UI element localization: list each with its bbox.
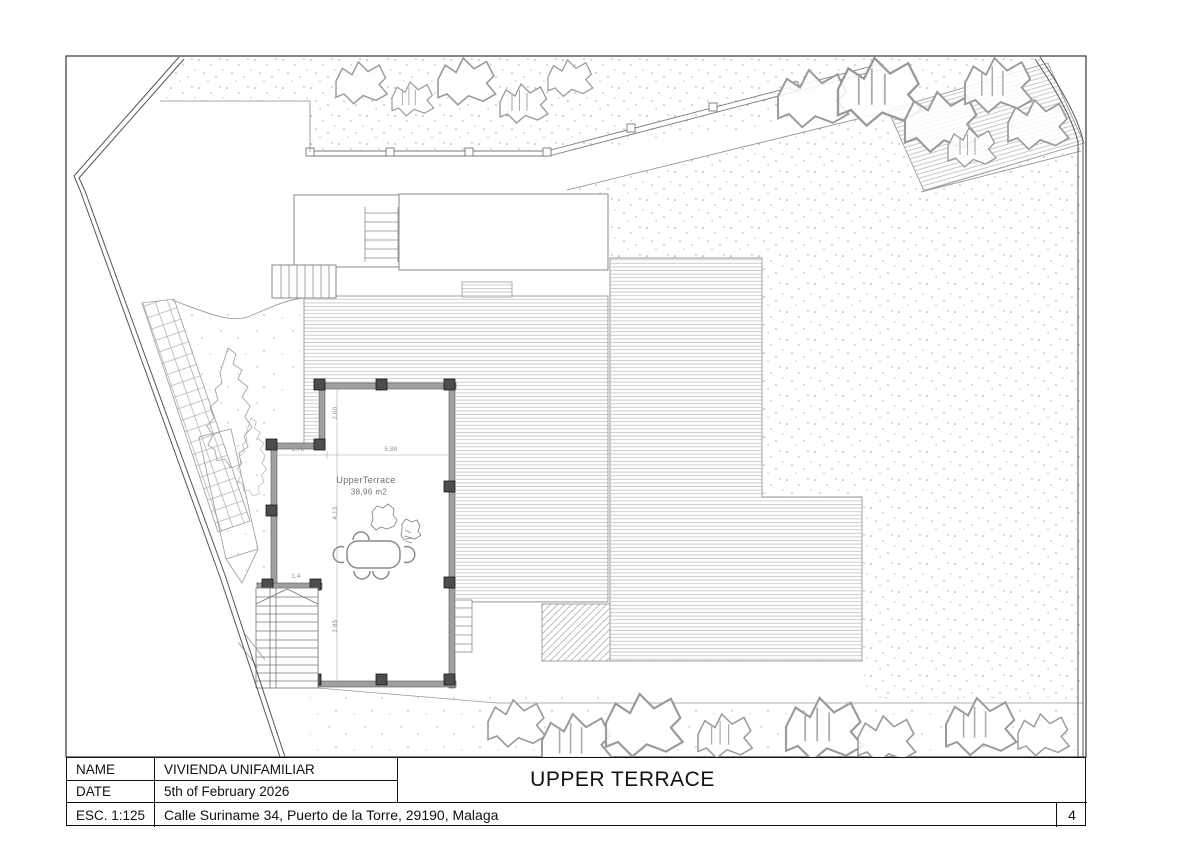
date-label-cell: DATE xyxy=(67,781,155,803)
name-label-cell: NAME xyxy=(67,758,155,781)
table xyxy=(347,541,400,568)
lower-path xyxy=(610,662,864,702)
scale-cell: ESC. 1:125 xyxy=(67,803,155,827)
hatch-square xyxy=(542,604,610,661)
plan-sheet: UpperTerrace 38,96 m2 2,60 1,76 5,88 4,1… xyxy=(0,0,1200,848)
page-number-cell: 4 xyxy=(1057,803,1087,827)
dimension-label: 1,76 xyxy=(292,447,305,453)
dimension-label: 2,85 xyxy=(333,620,339,633)
date-value-cell: 5th of February 2026 xyxy=(155,781,398,803)
dimension-label: 5,88 xyxy=(385,447,398,453)
site-plan-drawing xyxy=(0,0,1200,848)
ladder-element xyxy=(455,600,472,652)
room-area-label: 38,96 m2 xyxy=(351,488,388,497)
dimension-label: 1,4 xyxy=(291,574,300,580)
address-cell: Calle Suriname 34, Puerto de la Torre, 2… xyxy=(155,803,1057,827)
dimension-label: 4,13 xyxy=(333,507,339,520)
name-value-cell: VIVIENDA UNIFAMILIAR xyxy=(155,758,398,781)
title-block: NAME VIVIENDA UNIFAMILIAR DATE 5th of Fe… xyxy=(66,757,1086,826)
dimension-label: 2,60 xyxy=(333,407,339,420)
room-label: UpperTerrace xyxy=(336,475,395,485)
sheet-title: UPPER TERRACE xyxy=(398,758,1087,803)
